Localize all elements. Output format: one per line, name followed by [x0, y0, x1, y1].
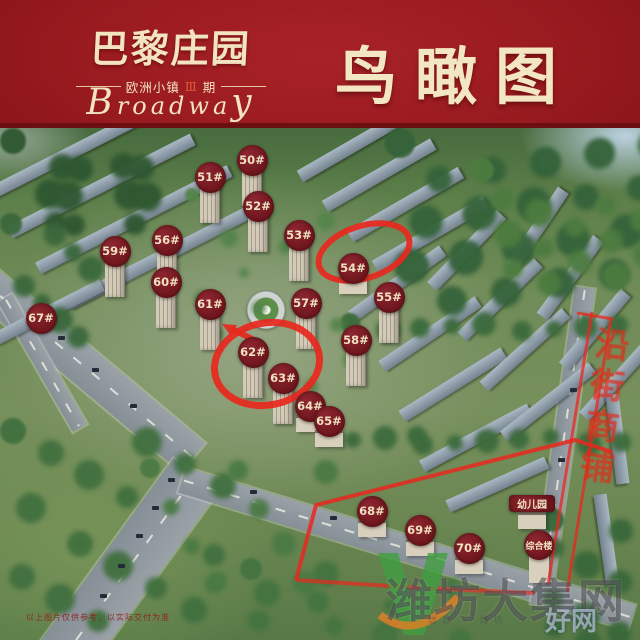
aerial-view-poster: 巴黎庄园 欧洲小镇Ⅲ期 Broadway 鸟瞰图 [0, 0, 640, 640]
page-title: 鸟瞰图 [305, 26, 605, 116]
existing-building-row [480, 308, 570, 391]
car [168, 478, 175, 482]
existing-building-row [419, 403, 533, 472]
car [152, 506, 159, 510]
car [130, 404, 137, 408]
existing-building-row [35, 165, 232, 274]
existing-building-row [7, 134, 196, 239]
existing-building-row [594, 494, 619, 585]
car [58, 336, 65, 340]
tree-cluster [185, 188, 199, 202]
car [570, 388, 577, 392]
car [118, 564, 125, 568]
existing-building-row [606, 394, 630, 485]
tree-cluster [0, 128, 26, 154]
tree-cluster [0, 213, 22, 235]
car [92, 368, 99, 372]
existing-building-row [507, 187, 569, 271]
existing-building-row [500, 362, 596, 441]
tree-cluster [470, 158, 494, 182]
brand-logo: 巴黎庄园 欧洲小镇Ⅲ期 Broadway [76, 18, 266, 120]
car [558, 458, 565, 462]
car [136, 534, 143, 538]
brand-name: 巴黎庄园 [75, 18, 268, 73]
car [420, 544, 427, 548]
tree-cluster [240, 558, 262, 580]
header-banner: 巴黎庄园 欧洲小镇Ⅲ期 Broadway 鸟瞰图 [0, 0, 640, 128]
existing-building-row [445, 457, 549, 513]
car [100, 594, 107, 598]
aerial-map [0, 128, 640, 640]
tree-cluster [540, 508, 564, 532]
roundabout [247, 291, 285, 329]
road-1 [0, 264, 205, 472]
tree-cluster [0, 418, 26, 444]
existing-building-row [537, 235, 604, 320]
tree-cluster [340, 313, 360, 333]
car [330, 516, 337, 520]
car [30, 308, 37, 312]
tree-cluster [385, 128, 415, 158]
tree-cluster [140, 458, 160, 478]
brand-english: Broadway [76, 92, 266, 120]
road-3 [178, 468, 635, 630]
car [250, 490, 257, 494]
